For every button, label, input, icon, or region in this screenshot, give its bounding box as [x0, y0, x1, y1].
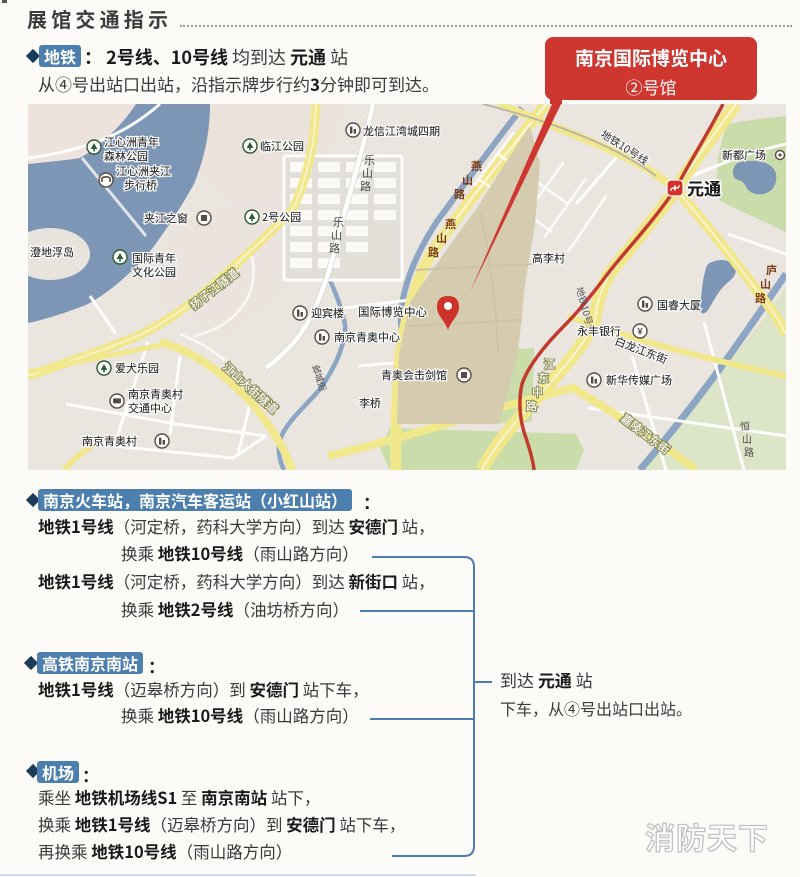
svg-text:森林公园: 森林公园 — [104, 148, 148, 164]
svg-text:迎宾楼: 迎宾楼 — [311, 305, 344, 321]
svg-text:夹江之窗: 夹江之窗 — [144, 210, 188, 226]
svg-text:文化公园: 文化公园 — [132, 264, 176, 280]
svg-text:爱犬乐园: 爱犬乐园 — [115, 360, 159, 376]
svg-text:新华传媒广场: 新华传媒广场 — [606, 372, 672, 388]
svg-text:步行桥: 步行桥 — [124, 177, 157, 193]
svg-text:青奥会击剑馆: 青奥会击剑馆 — [381, 367, 447, 383]
svg-text:南京青奥村: 南京青奥村 — [82, 433, 137, 449]
svg-text:高李村: 高李村 — [532, 250, 565, 266]
svg-text:南京青奥中心: 南京青奥中心 — [334, 329, 400, 345]
svg-text:李桥: 李桥 — [359, 395, 381, 411]
svg-text:元通: 元通 — [687, 175, 721, 200]
svg-text:临江公园: 临江公园 — [260, 138, 304, 154]
svg-text:澄地浮岛: 澄地浮岛 — [30, 244, 74, 260]
svg-text:国睿大厦: 国睿大厦 — [657, 297, 701, 313]
svg-text:2号公园: 2号公园 — [262, 209, 301, 225]
svg-text:永丰银行: 永丰银行 — [577, 323, 621, 339]
svg-text:交通中心: 交通中心 — [128, 400, 172, 416]
svg-text:龙信江湾城四期: 龙信江湾城四期 — [363, 123, 440, 139]
svg-text:国际博览中心: 国际博览中心 — [358, 304, 427, 320]
svg-text:¥: ¥ — [637, 325, 643, 338]
svg-text:新都广场: 新都广场 — [722, 147, 766, 163]
